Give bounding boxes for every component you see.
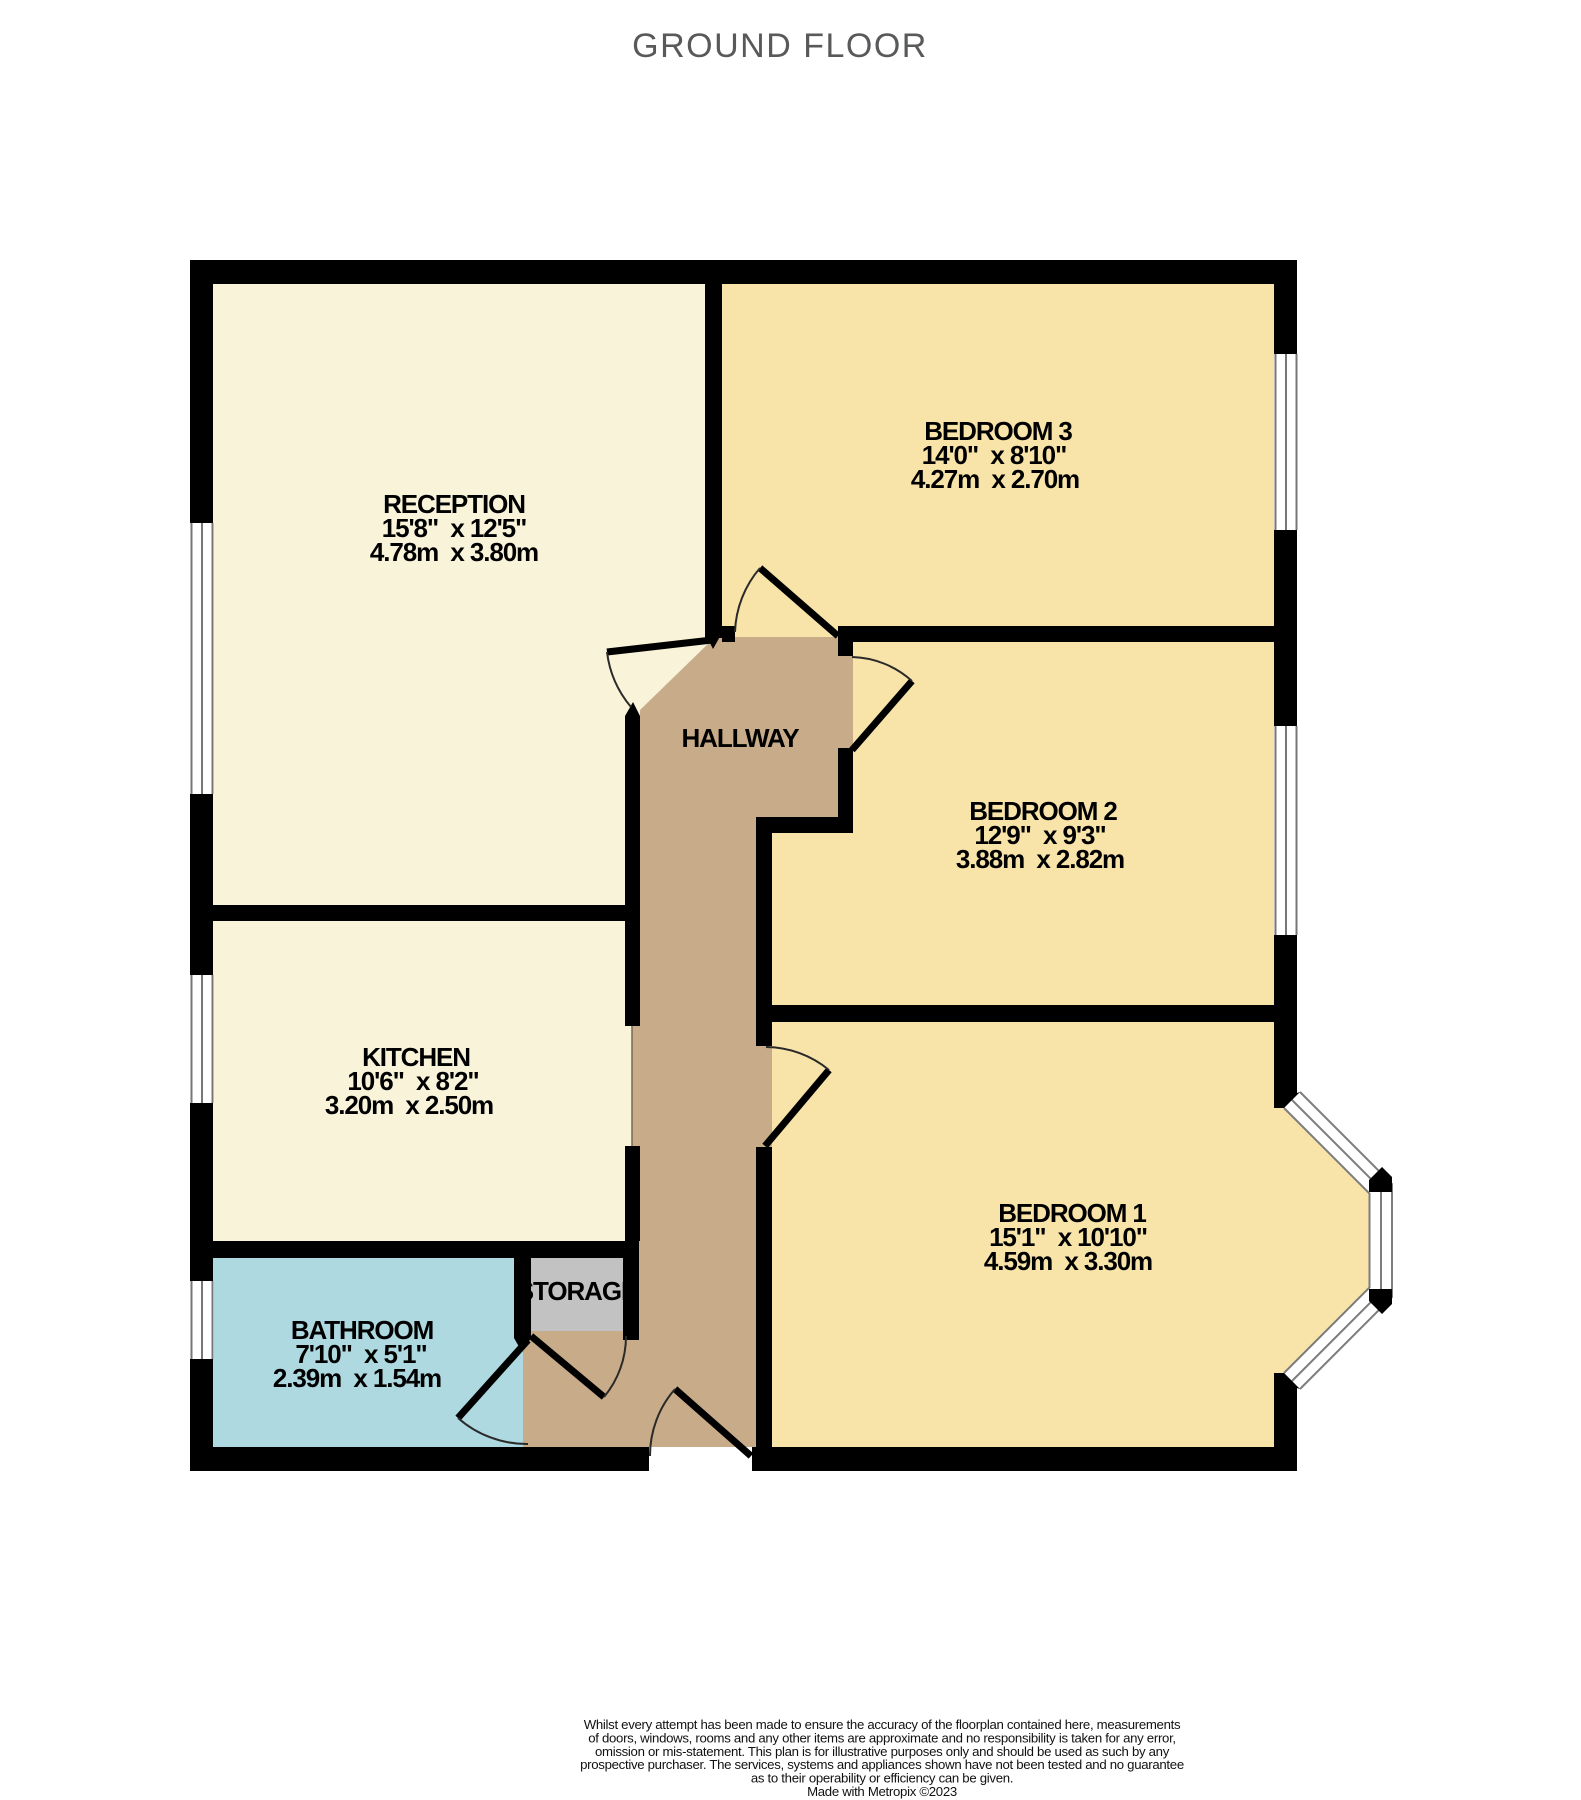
svg-text:STORAGE: STORAGE (517, 1276, 638, 1306)
svg-text:GROUND FLOOR: GROUND FLOOR (632, 27, 928, 65)
svg-text:3.20m x 2.50m: 3.20m x 2.50m (325, 1090, 493, 1120)
svg-text:2.39m x 1.54m: 2.39m x 1.54m (273, 1363, 441, 1393)
svg-text:4.78m x 3.80m: 4.78m x 3.80m (370, 537, 538, 567)
svg-text:Made with Metropix ©2023: Made with Metropix ©2023 (807, 1784, 957, 1799)
svg-text:HALLWAY: HALLWAY (681, 723, 799, 753)
svg-text:4.27m x 2.70m: 4.27m x 2.70m (911, 464, 1079, 494)
svg-text:4.59m x 3.30m: 4.59m x 3.30m (984, 1246, 1152, 1276)
svg-text:3.88m x 2.82m: 3.88m x 2.82m (956, 844, 1124, 874)
